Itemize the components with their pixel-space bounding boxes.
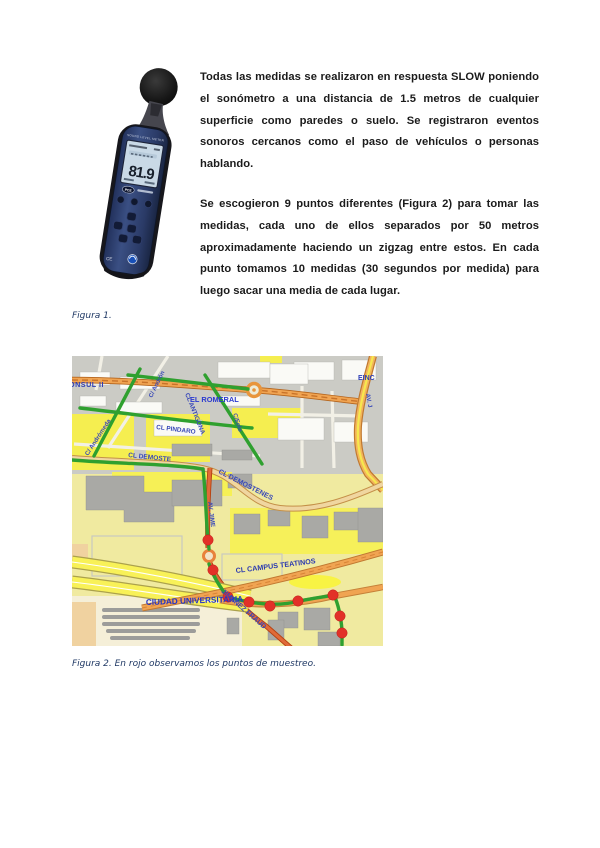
- sound-level-meter-image: SOUND LEVEL METER 81.9 PCE: [88, 58, 188, 286]
- label-romeral: EL ROMERAL: [190, 395, 239, 404]
- paragraph-1: Todas las medidas se realizaron en respu…: [200, 67, 539, 176]
- label-consul: ONSUL II: [72, 380, 104, 389]
- sample-point: [337, 628, 347, 638]
- figure1-caption: Figura 1.: [72, 311, 112, 321]
- label-einc: EINC: [358, 375, 375, 382]
- sample-point: [328, 590, 338, 600]
- map-figure: ONSUL II C/ Andrón C/ Andrómeda CL PINDA…: [72, 356, 383, 651]
- sample-point: [203, 535, 213, 545]
- sample-point: [208, 565, 218, 575]
- sound-level-meter-figure: SOUND LEVEL METER 81.9 PCE: [88, 58, 188, 291]
- ce-mark: CE: [106, 256, 113, 261]
- paragraph-2: Se escogieron 9 puntos diferentes (Figur…: [200, 194, 539, 303]
- body-text: Todas las medidas se realizaron en respu…: [200, 67, 539, 321]
- sample-point: [293, 596, 303, 606]
- campus-map-image: ONSUL II C/ Andrón C/ Andrómeda CL PINDA…: [72, 356, 383, 646]
- figure2-caption: Figura 2. En rojo observamos los puntos …: [72, 659, 316, 669]
- document-page: SOUND LEVEL METER 81.9 PCE: [0, 0, 600, 848]
- microphone-foam-icon: [137, 65, 180, 108]
- sample-point: [265, 601, 275, 611]
- roundabout-jimenez: [204, 551, 215, 562]
- sample-point: [335, 611, 345, 621]
